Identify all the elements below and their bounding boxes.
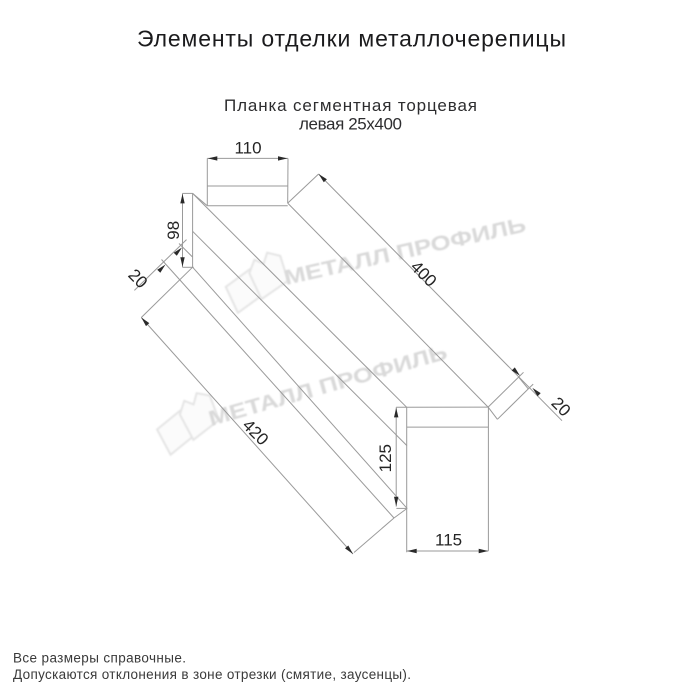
svg-text:Планка сегментная торцевая: Планка сегментная торцевая [224,96,477,115]
svg-text:Элементы отделки металлочерепи: Элементы отделки металлочерепицы [137,26,566,52]
svg-text:110: 110 [234,139,261,158]
svg-text:левая 25х400: левая 25х400 [299,115,402,134]
svg-text:Допускаются отклонения в зоне: Допускаются отклонения в зоне отрезки (с… [13,667,411,682]
svg-text:115: 115 [435,531,462,550]
svg-text:Все размеры справочные.: Все размеры справочные. [13,650,186,665]
svg-text:98: 98 [164,221,183,240]
svg-text:125: 125 [376,444,395,472]
